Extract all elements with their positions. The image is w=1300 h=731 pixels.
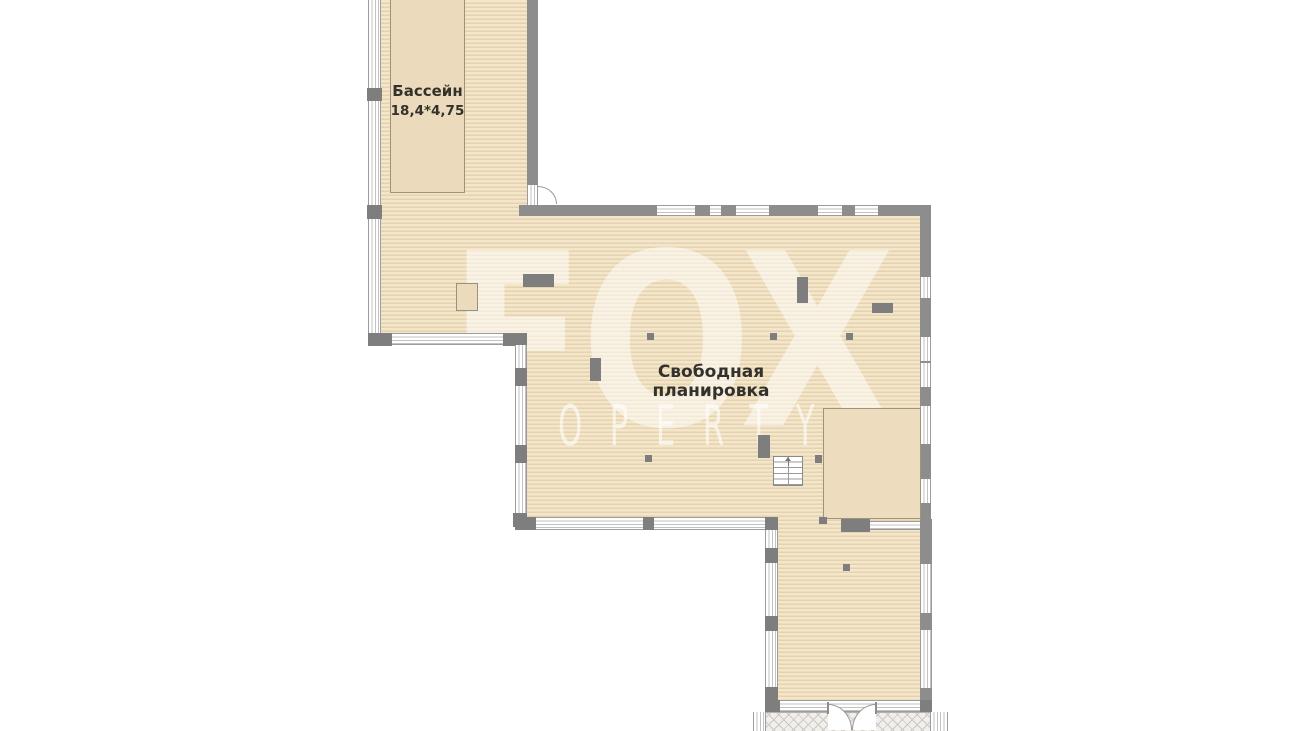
wall-mullion bbox=[515, 368, 527, 386]
bottom-wing-floor bbox=[778, 517, 920, 701]
window-band bbox=[855, 205, 878, 216]
wall-mullion bbox=[367, 88, 382, 101]
terrace-rail-right bbox=[930, 712, 948, 731]
wall-corner bbox=[765, 700, 780, 712]
wall-segment bbox=[841, 519, 870, 532]
stairs-up-arrow-head bbox=[785, 457, 791, 461]
column-pillar bbox=[843, 564, 850, 571]
interior-room bbox=[823, 408, 921, 519]
wall-segment bbox=[527, 0, 538, 185]
pool-dimensions: 18,4*4,75 bbox=[380, 103, 475, 119]
window-band bbox=[710, 205, 721, 216]
floor-plan: FOX OPERTY Бассейн 18,4*4,75 bbox=[0, 0, 1300, 731]
window-band bbox=[657, 205, 695, 216]
wall-mullion bbox=[515, 445, 527, 463]
shaft-box bbox=[456, 283, 478, 311]
window-band bbox=[920, 337, 931, 361]
window-band bbox=[736, 205, 769, 216]
wall-mullion bbox=[765, 616, 778, 631]
wall-corner bbox=[920, 700, 932, 712]
pool-label: Бассейн bbox=[380, 82, 475, 101]
wall-corner bbox=[368, 333, 392, 346]
door-leaf bbox=[827, 702, 829, 714]
wall-mullion bbox=[765, 548, 778, 563]
column-pillar bbox=[645, 455, 652, 462]
stairs-icon bbox=[773, 456, 803, 486]
window-band bbox=[920, 406, 931, 444]
column-pillar bbox=[590, 358, 601, 381]
column-pillar bbox=[523, 274, 554, 287]
column-pillar bbox=[758, 435, 770, 458]
door-arc-icon bbox=[538, 186, 557, 204]
column-pillar bbox=[872, 303, 893, 313]
open-plan-label-line2: планировка bbox=[611, 382, 811, 401]
column-pillar bbox=[647, 333, 654, 340]
window-band bbox=[920, 479, 931, 503]
window-band bbox=[920, 277, 931, 298]
wall-corner bbox=[819, 517, 827, 524]
window-band bbox=[920, 564, 932, 613]
wall-mullion bbox=[367, 205, 382, 219]
wall-mullion bbox=[643, 517, 654, 530]
window-band-wing-bottom bbox=[765, 700, 932, 712]
wall-hall-right bbox=[920, 205, 931, 519]
column-pillar bbox=[846, 333, 853, 340]
door-jamb bbox=[527, 185, 538, 205]
watermark-operty-text: OPERTY bbox=[558, 399, 842, 455]
window-band bbox=[870, 521, 920, 530]
window-band bbox=[920, 363, 931, 387]
terrace-rail-left bbox=[753, 712, 766, 731]
window-band bbox=[920, 630, 932, 688]
column-pillar bbox=[770, 333, 777, 340]
wall-corner bbox=[765, 517, 778, 531]
column-pillar bbox=[815, 455, 822, 463]
column-pillar bbox=[797, 277, 808, 303]
window-band bbox=[818, 205, 842, 216]
open-plan-label-line1: Свободная bbox=[611, 363, 811, 382]
door-leaf bbox=[875, 702, 877, 714]
window-band-left-wing bbox=[368, 0, 381, 334]
wall-corner bbox=[515, 517, 536, 530]
